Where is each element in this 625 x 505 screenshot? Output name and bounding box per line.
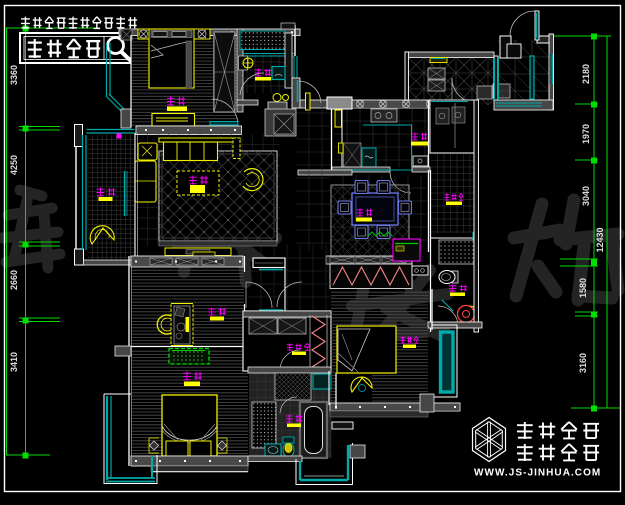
svg-text:1970: 1970 — [581, 124, 591, 144]
svg-text:3160: 3160 — [578, 353, 588, 373]
svg-text:WWW.JS-JINHUA.COM: WWW.JS-JINHUA.COM — [474, 468, 601, 479]
svg-text:3360: 3360 — [9, 65, 19, 85]
svg-text:3410: 3410 — [9, 352, 19, 372]
svg-text:12430: 12430 — [595, 227, 605, 252]
svg-text:4250: 4250 — [9, 155, 19, 175]
svg-text:1580: 1580 — [578, 278, 588, 298]
svg-text:2660: 2660 — [9, 270, 19, 290]
svg-text:2180: 2180 — [581, 64, 591, 84]
svg-text:3040: 3040 — [581, 186, 591, 206]
